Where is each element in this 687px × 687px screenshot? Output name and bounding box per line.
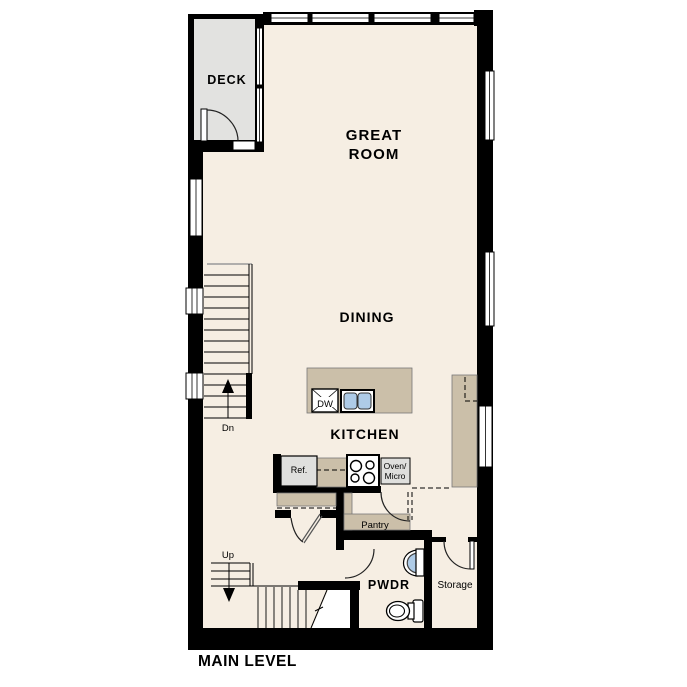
wall-kitchen-door-stub-left (275, 510, 291, 518)
window-deck-wall-1 (257, 28, 263, 85)
window-right-3 (479, 406, 492, 467)
window-deck-wall-2 (257, 88, 263, 142)
window-top-1 (271, 14, 308, 23)
cooktop (347, 455, 379, 487)
counter-cooktop-left (317, 458, 347, 487)
floor-plan-canvas: DECK GREAT ROOM DINING KITCHEN Pantry PW… (0, 0, 687, 687)
window-top-2 (312, 14, 369, 23)
wall-pantry-west (336, 486, 344, 550)
room-label-great-room-2: ROOM (349, 146, 400, 163)
counter-hall (277, 493, 336, 506)
stair-label-dn: Dn (222, 423, 234, 434)
stair-label-up: Up (222, 550, 234, 561)
floor-plan-svg: DECK GREAT ROOM DINING KITCHEN Pantry PW… (0, 0, 687, 687)
island-sink (341, 390, 374, 412)
window-left-3 (186, 373, 203, 399)
deck-door-threshold (233, 141, 255, 150)
toilet (387, 600, 424, 622)
window-top-4 (439, 14, 474, 23)
room-label-deck: DECK (207, 73, 246, 87)
wall-hall-south (298, 581, 360, 590)
room-label-pantry: Pantry (361, 520, 389, 531)
tall-cabinet (452, 375, 477, 487)
room-label-storage: Storage (437, 580, 472, 591)
plan-title: MAIN LEVEL (198, 653, 297, 670)
bottom-wall (188, 628, 493, 650)
wall-ref-stub (273, 454, 281, 487)
fixture-label-oven-2: Micro (385, 471, 406, 481)
wall-pwdr-north (336, 530, 432, 540)
wall-stairwell-edge (246, 373, 252, 419)
fixture-label-dw: DW (317, 399, 333, 410)
deck-top-wall (188, 14, 263, 19)
room-label-kitchen: KITCHEN (330, 426, 399, 442)
wall-kitchen-door-stub-right (320, 510, 336, 518)
window-right-1 (485, 71, 494, 140)
window-right-2 (485, 252, 494, 326)
window-left-1 (190, 179, 202, 236)
room-label-dining: DINING (340, 309, 395, 325)
deck-left-wall (188, 14, 194, 143)
wall-pwdr-storage (424, 537, 432, 628)
wall-stair-east (350, 590, 359, 628)
fixture-label-ref: Ref. (291, 465, 308, 475)
window-top-3 (374, 14, 431, 23)
room-label-great-room-1: GREAT (346, 127, 402, 144)
room-label-pwdr: PWDR (368, 578, 410, 592)
window-left-2 (186, 288, 203, 314)
fixture-label-oven-1: Oven/ (384, 461, 407, 471)
